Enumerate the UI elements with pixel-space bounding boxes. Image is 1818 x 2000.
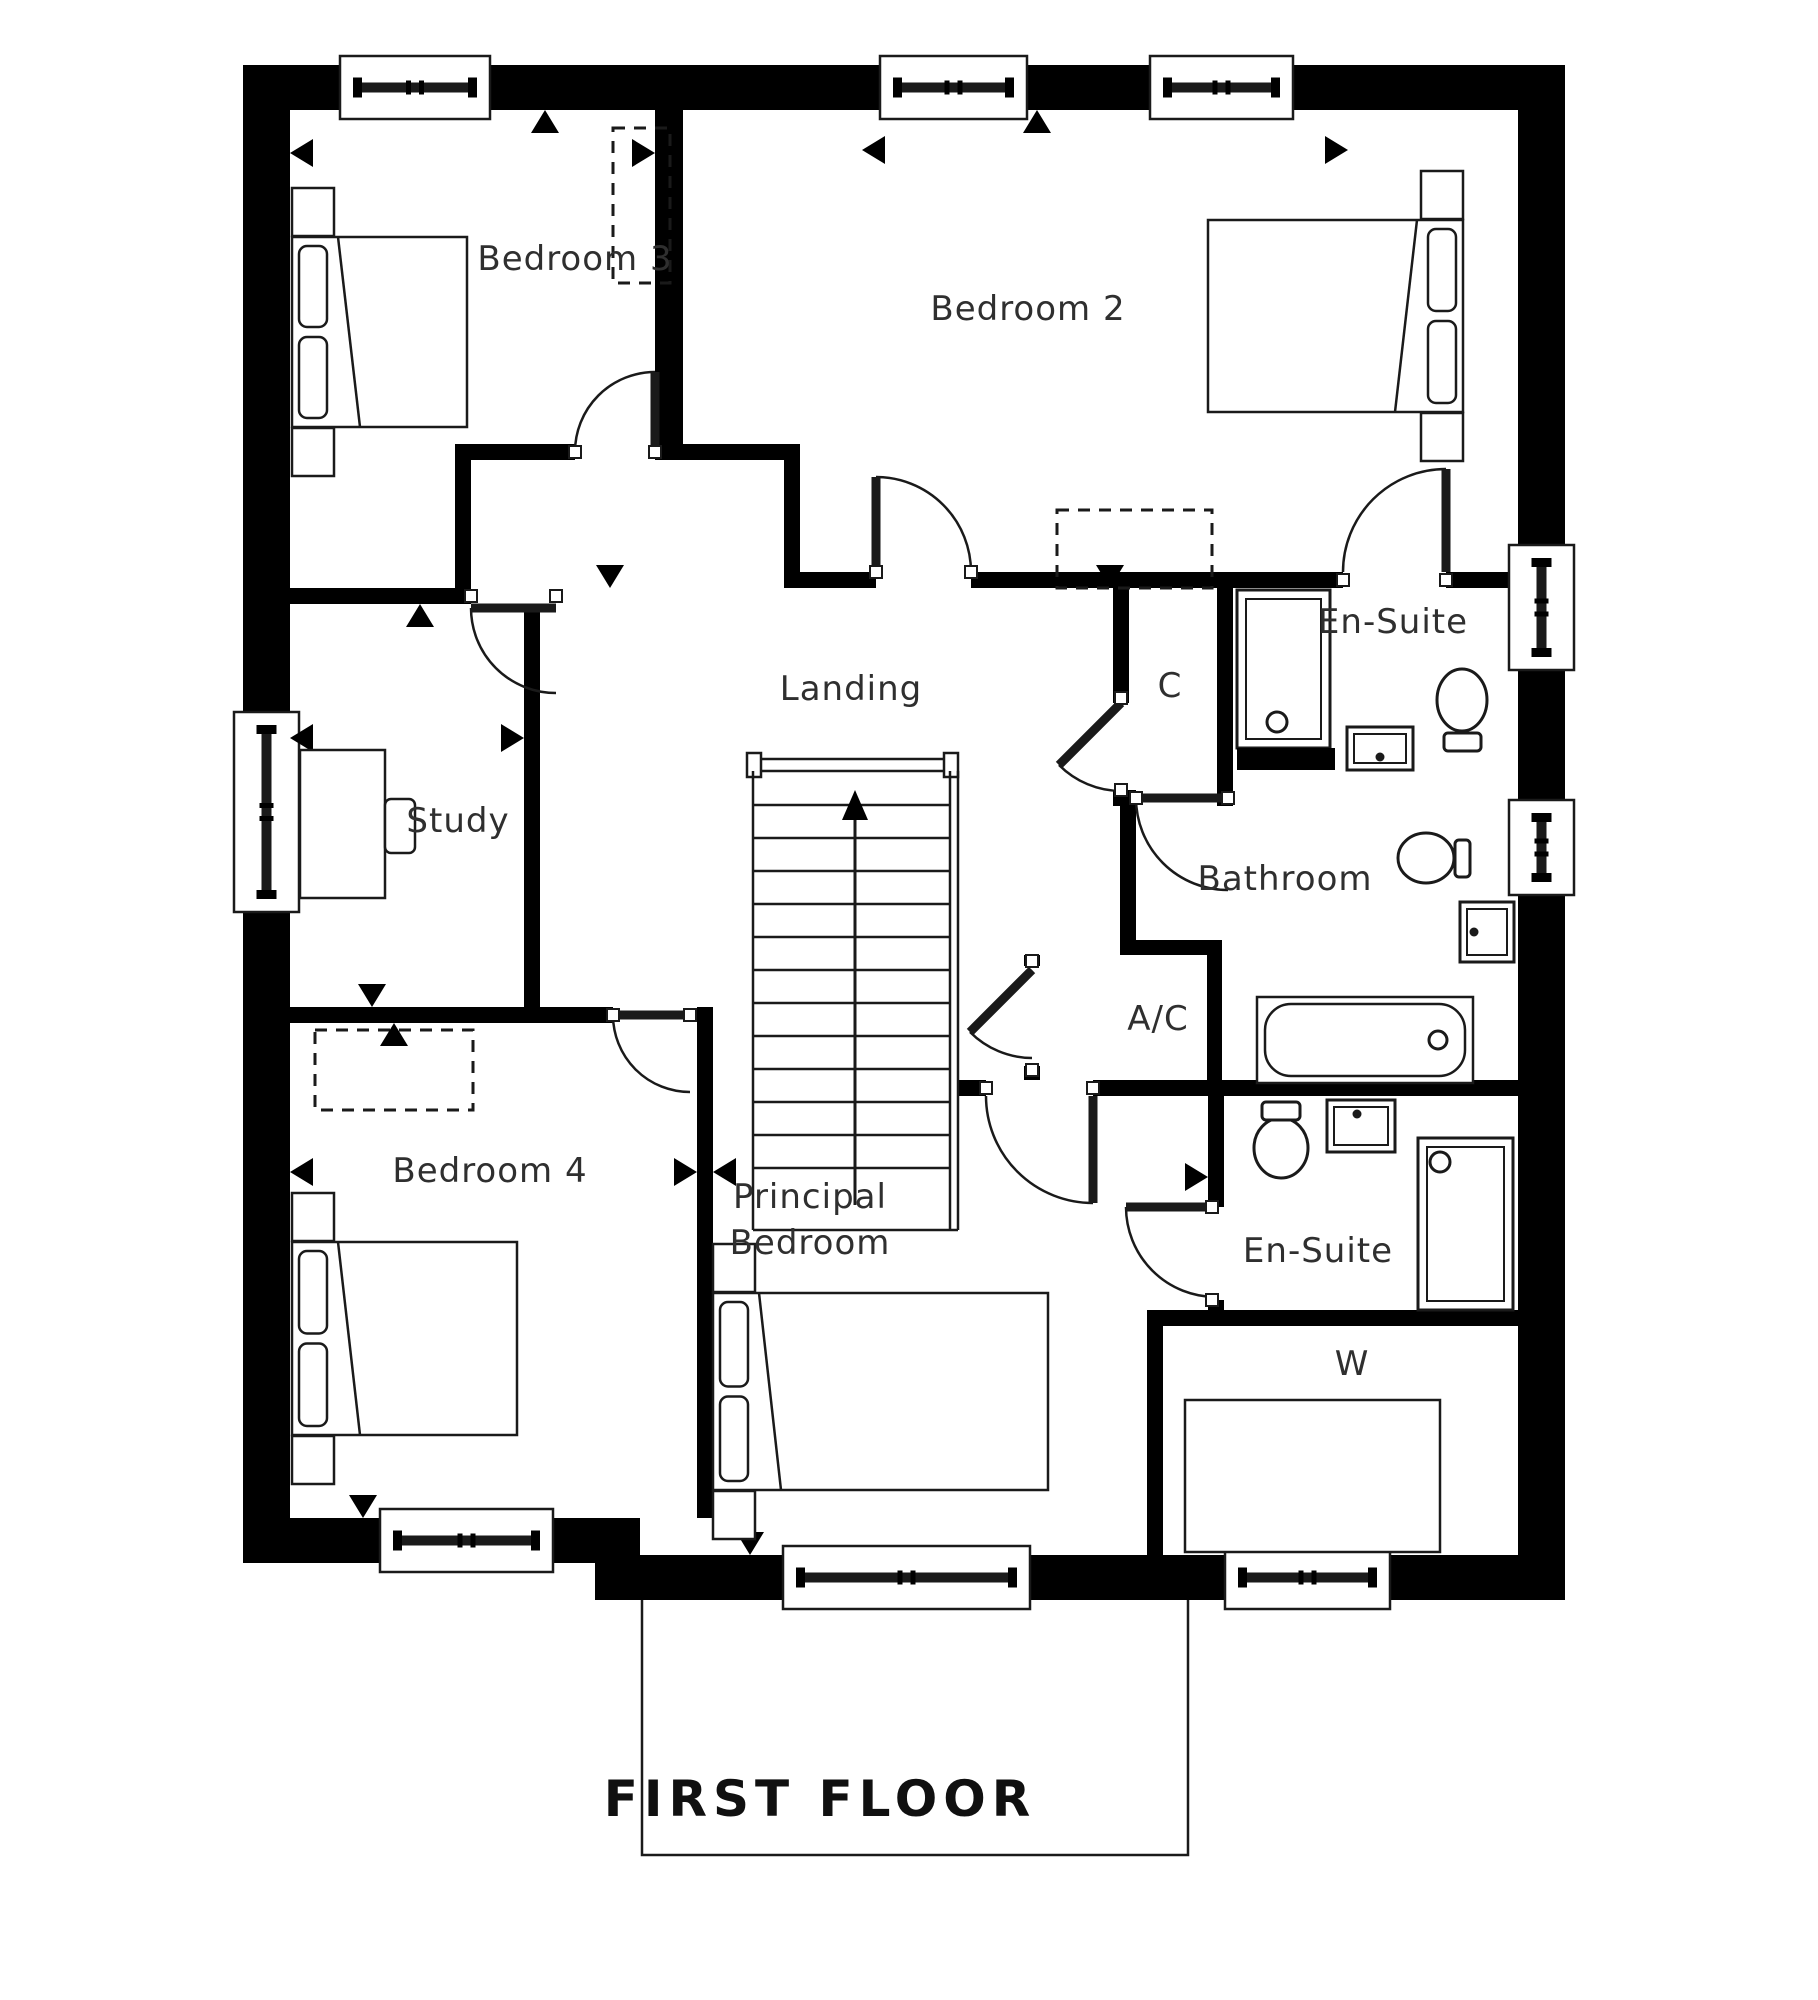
wall <box>455 444 575 460</box>
bedside-table-icon <box>1421 171 1463 219</box>
window-end <box>1238 1568 1247 1588</box>
window-tick <box>1213 81 1218 95</box>
toilet-tank-icon <box>1262 1102 1300 1120</box>
toilet-icon <box>1437 669 1487 731</box>
door-bedroom-4-arc <box>613 1015 690 1092</box>
window-tick <box>1535 599 1549 604</box>
wall <box>290 588 455 604</box>
pillow-icon <box>299 1344 327 1427</box>
door-closet-c-jamb <box>1115 784 1127 796</box>
window-tick <box>419 81 424 95</box>
wall <box>1446 572 1518 588</box>
wall <box>1237 748 1335 770</box>
room-label-line: Bedroom <box>730 1223 891 1263</box>
room-label-en-suite-1: En-Suite <box>1318 602 1468 642</box>
dimension-arrow <box>862 136 885 164</box>
door-closet-c-leaf <box>1059 703 1121 765</box>
window-tick <box>1226 81 1231 95</box>
door-closet-c-arc <box>1059 765 1121 791</box>
door-ac-cupboard-arc <box>970 1032 1032 1058</box>
dimension-arrow <box>531 110 559 133</box>
desk-icon <box>300 750 385 898</box>
window-end <box>1163 78 1172 98</box>
room-label-line: Principal <box>733 1177 887 1217</box>
window-tick <box>911 1571 916 1585</box>
door-principal-bedroom-jamb <box>1087 1082 1099 1094</box>
dimension-arrow <box>501 724 524 752</box>
room-label-wardrobe-w: W <box>1335 1344 1370 1384</box>
toilet-tank-icon <box>1455 840 1470 877</box>
pillow-icon <box>720 1302 748 1387</box>
door-principal-bedroom-jamb <box>980 1082 992 1094</box>
door-bedroom-4-jamb <box>607 1009 619 1021</box>
wall <box>524 604 540 1007</box>
door-bedroom-2-jamb <box>870 566 882 578</box>
wall <box>1120 806 1136 955</box>
window-end <box>893 78 902 98</box>
dimension-arrow <box>290 1158 313 1186</box>
floor-title: FIRST FLOOR <box>0 1770 1640 1828</box>
door-en-suite-2-jamb <box>1206 1201 1218 1213</box>
door-bathroom-jamb <box>1222 792 1234 804</box>
door-bedroom-3-jamb <box>569 446 581 458</box>
door-en-suite-1-arc <box>1343 469 1446 572</box>
bedside-table-icon <box>292 1193 334 1241</box>
door-study-jamb <box>465 590 477 602</box>
dimension-arrow <box>380 1023 408 1046</box>
window-end <box>353 78 362 98</box>
wall <box>784 460 800 588</box>
window-tick <box>898 1571 903 1585</box>
dimension-arrow <box>596 565 624 588</box>
dimension-arrow <box>406 604 434 627</box>
room-label-bedroom-3: Bedroom 3 <box>477 239 672 279</box>
pillow-icon <box>720 1397 748 1482</box>
room-label-bedroom-4: Bedroom 4 <box>392 1151 587 1191</box>
wall <box>1147 1310 1518 1326</box>
wall <box>1208 1096 1224 1207</box>
wall <box>1120 940 1222 955</box>
door-principal-bedroom-arc <box>986 1096 1093 1203</box>
floor-plan-canvas: Bedroom 3Bedroom 2En-SuiteCLandingStudyB… <box>0 0 1818 2000</box>
door-bedroom-3-arc <box>575 372 655 452</box>
pillow-icon <box>1428 229 1456 311</box>
door-en-suite-2-arc <box>1126 1207 1216 1297</box>
toilet-tank-icon <box>1444 733 1481 751</box>
window-end <box>257 890 277 899</box>
wall <box>455 444 471 604</box>
door-study-arc <box>471 608 556 693</box>
door-bedroom-2-jamb <box>965 566 977 578</box>
window-tick <box>260 816 274 821</box>
window-end <box>393 1531 402 1551</box>
room-label-bathroom: Bathroom <box>1198 859 1373 899</box>
wall <box>971 572 1343 588</box>
toilet-icon <box>1398 833 1454 883</box>
window-tick <box>958 81 963 95</box>
sink-tap <box>1470 928 1479 937</box>
dimension-arrow <box>674 1158 697 1186</box>
door-bedroom-2-arc <box>876 477 971 572</box>
sink-tap <box>1376 753 1385 762</box>
dimension-arrow <box>632 139 655 167</box>
wall <box>697 1007 713 1518</box>
window-end <box>1271 78 1280 98</box>
window-tick <box>1299 1571 1304 1585</box>
wall <box>1113 588 1129 703</box>
window-tick <box>1535 839 1549 844</box>
first-floor-plan: Bedroom 3Bedroom 2En-SuiteCLandingStudyB… <box>0 0 1818 2000</box>
window-end <box>257 725 277 734</box>
dimension-arrow <box>349 1495 377 1518</box>
door-bedroom-3-jamb <box>649 446 661 458</box>
bedside-table-icon <box>713 1491 755 1539</box>
window-end <box>1368 1568 1377 1588</box>
window-end <box>1532 813 1552 822</box>
pillow-icon <box>299 337 327 418</box>
door-en-suite-2-jamb <box>1206 1294 1218 1306</box>
window-tick <box>1535 852 1549 857</box>
bedside-table-icon <box>292 1436 334 1484</box>
room-label-study: Study <box>406 801 509 841</box>
wall <box>1217 588 1233 806</box>
dimension-arrow <box>290 139 313 167</box>
pillow-icon <box>299 246 327 327</box>
pillow-icon <box>1428 321 1456 403</box>
pillow-icon <box>299 1251 327 1334</box>
window-end <box>796 1568 805 1588</box>
window-tick <box>458 1534 463 1548</box>
window-tick <box>406 81 411 95</box>
wall <box>1207 940 1222 1096</box>
bath-drain <box>1429 1031 1447 1049</box>
window-tick <box>471 1534 476 1548</box>
door-study-jamb <box>550 590 562 602</box>
door-ac-cupboard-jamb <box>1026 955 1038 967</box>
window-end <box>1532 873 1552 882</box>
bed-icon <box>1208 220 1463 412</box>
sink-tap <box>1353 1110 1362 1119</box>
window-end <box>1008 1568 1017 1588</box>
window-end <box>531 1531 540 1551</box>
room-label-bedroom-2: Bedroom 2 <box>930 289 1125 329</box>
bedside-table-icon <box>292 428 334 476</box>
window-tick <box>1312 1571 1317 1585</box>
bedside-table-icon <box>1421 413 1463 461</box>
door-en-suite-1-jamb <box>1440 574 1452 586</box>
door-en-suite-1-jamb <box>1337 574 1349 586</box>
wall <box>1147 1310 1163 1555</box>
door-bedroom-4-jamb <box>684 1009 696 1021</box>
bedside-table-icon <box>292 188 334 236</box>
door-closet-c-jamb <box>1115 692 1127 704</box>
room-label-landing: Landing <box>780 669 923 709</box>
door-ac-cupboard-jamb <box>1026 1064 1038 1076</box>
room-label-en-suite-2: En-Suite <box>1243 1231 1393 1271</box>
dimension-arrow <box>1325 136 1348 164</box>
shower-drain <box>1267 712 1287 732</box>
dimension-arrow <box>358 984 386 1007</box>
window-end <box>1005 78 1014 98</box>
toilet-icon <box>1254 1118 1308 1178</box>
dimension-arrow <box>1185 1163 1208 1191</box>
window-tick <box>260 803 274 808</box>
room-label-ac-cupboard: A/C <box>1127 999 1188 1039</box>
wall <box>683 444 800 460</box>
wall <box>595 1555 1565 1600</box>
window-tick <box>1535 612 1549 617</box>
window-end <box>468 78 477 98</box>
window-end <box>1532 648 1552 657</box>
wall <box>800 572 876 588</box>
window-end <box>1532 558 1552 567</box>
door-bathroom-jamb <box>1130 792 1142 804</box>
window-tick <box>945 81 950 95</box>
room-label-closet-c: C <box>1158 666 1183 706</box>
wall <box>290 1007 613 1023</box>
door-ac-cupboard-leaf <box>970 970 1032 1032</box>
wardrobe-icon <box>1185 1400 1440 1552</box>
shower-drain <box>1430 1152 1450 1172</box>
